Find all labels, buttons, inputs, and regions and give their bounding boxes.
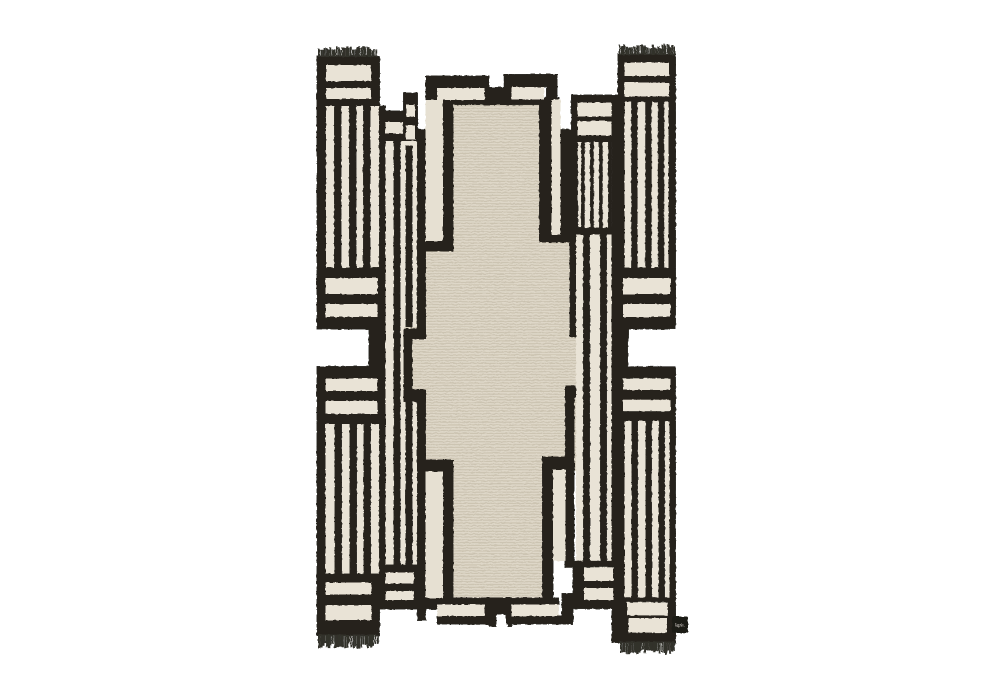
svg-text:tapis.: tapis.	[675, 623, 685, 628]
